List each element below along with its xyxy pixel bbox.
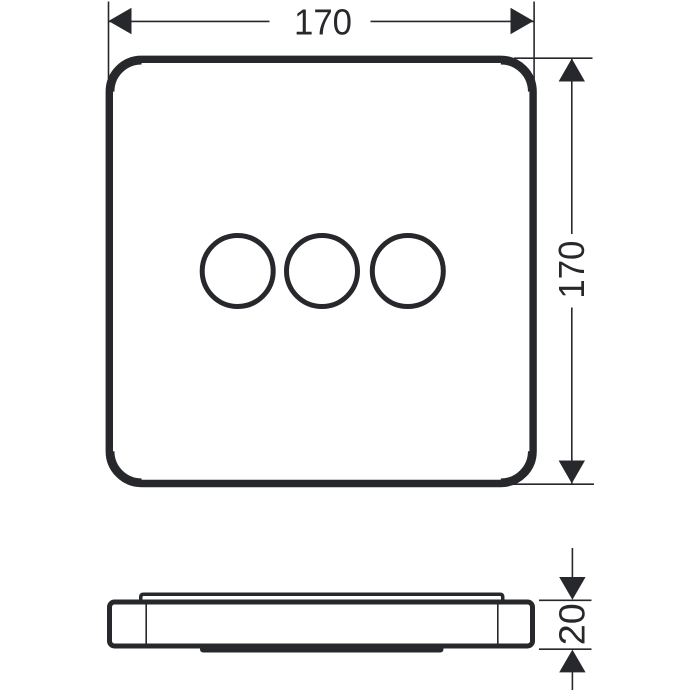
svg-text:20: 20	[551, 603, 592, 645]
svg-text:170: 170	[294, 2, 352, 43]
svg-text:170: 170	[551, 241, 592, 299]
